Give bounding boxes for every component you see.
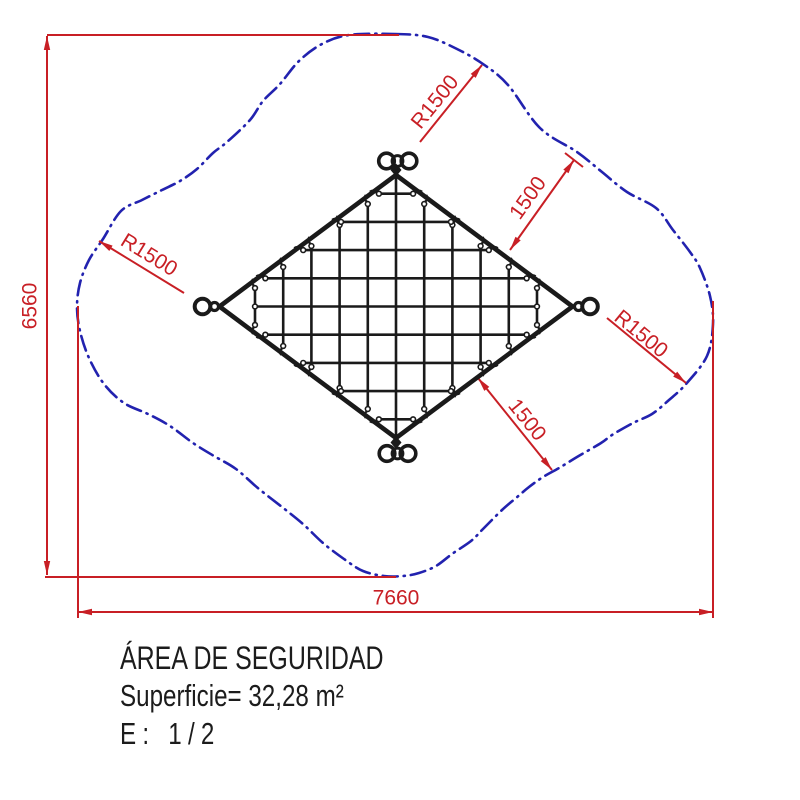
dimension-label-h7660: 7660 [373,587,420,610]
surface-area-label: Superficie= 32,28 m² [120,677,384,715]
left-link-icon [211,303,219,311]
left-ring-icon [195,299,211,315]
dimension-label-v6560: 6560 [19,283,42,330]
scale-label: E: 1/2 [120,715,384,753]
right-ring-icon [582,299,598,315]
dimension-label-d1500_bottom: 1500 [503,395,550,446]
title-block: ÁREA DE SEGURIDAD Superficie= 32,28 m² E… [120,639,458,753]
technical-drawing-canvas: 65607660R1500R1500R150015001500 ÁREA DE … [0,0,800,800]
dimension-label-r1500_right: R1500 [610,305,672,362]
dimension-annotations: 65607660R1500R1500R150015001500 [19,35,714,618]
drawing-title: ÁREA DE SEGURIDAD [120,639,384,677]
dimension-label-r1500_ul: R1500 [117,229,182,281]
right-link-icon [575,303,583,311]
dimension-label-d1500_top: 1500 [505,172,551,223]
